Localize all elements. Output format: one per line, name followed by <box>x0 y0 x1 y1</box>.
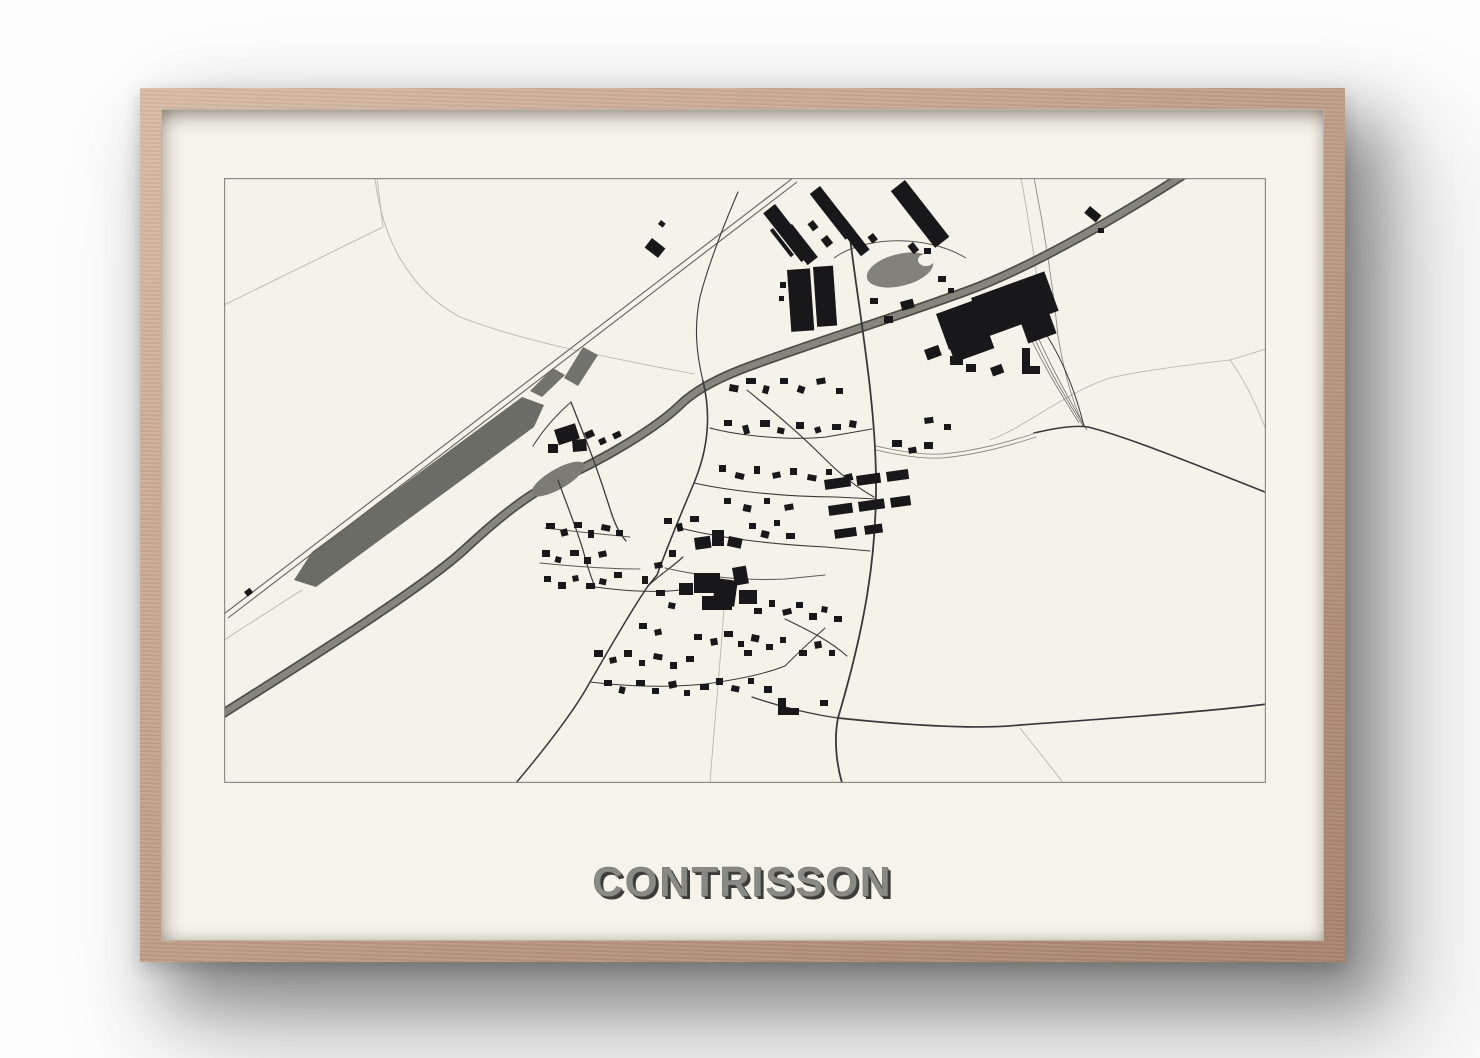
building-footprint <box>544 576 551 582</box>
building-footprint <box>694 536 712 550</box>
building-footprint <box>769 600 775 607</box>
pond-notch <box>918 254 934 266</box>
building-footprint <box>834 616 842 622</box>
building-footprint <box>790 468 797 475</box>
building-footprint <box>624 650 632 657</box>
building-footprint <box>787 268 814 331</box>
building-footprint <box>738 641 744 647</box>
building-footprint <box>1022 366 1040 374</box>
building-footprint <box>786 533 795 539</box>
building-footprint <box>588 530 594 538</box>
building-footprint <box>836 388 843 394</box>
building-footprint <box>944 424 951 430</box>
building-footprint <box>950 356 963 365</box>
building-footprint <box>774 520 780 526</box>
building-footprint <box>748 678 754 684</box>
building-footprint <box>572 439 587 452</box>
building-footprint <box>821 606 828 613</box>
building-footprint <box>719 465 726 472</box>
building-footprint <box>639 623 647 629</box>
building-footprint <box>870 298 878 304</box>
building-footprint <box>716 678 723 685</box>
building-footprint <box>813 266 837 327</box>
building-footprint <box>700 684 709 690</box>
building-footprint <box>754 608 762 614</box>
building-footprint <box>780 378 788 384</box>
building-footprint <box>636 680 645 686</box>
building-footprint <box>616 530 623 536</box>
building-footprint <box>594 650 603 657</box>
building-footprint <box>1098 228 1104 233</box>
building-footprint <box>796 422 804 429</box>
building-footprint <box>724 420 732 426</box>
building-footprint <box>542 550 550 557</box>
building-footprint <box>948 288 954 293</box>
building-footprint <box>884 316 893 323</box>
picture-frame: CONTRISSON <box>140 88 1345 962</box>
building-footprint <box>664 518 672 524</box>
building-footprint <box>820 700 828 706</box>
building-footprint <box>614 572 622 578</box>
building-footprint <box>558 582 566 589</box>
building-footprint <box>754 466 760 474</box>
building-footprint <box>799 650 807 656</box>
building-footprint <box>669 550 676 557</box>
poster-title: CONTRISSON <box>162 858 1323 906</box>
building-footprint <box>849 420 857 428</box>
building-footprint <box>764 686 772 693</box>
building-footprint <box>702 596 732 610</box>
building-footprint <box>760 420 770 427</box>
building-footprint <box>548 444 558 453</box>
map-paper <box>224 178 1266 783</box>
building-footprint <box>584 557 591 564</box>
building-footprint <box>670 662 677 669</box>
building-footprint <box>829 650 835 656</box>
building-footprint <box>642 576 648 584</box>
building-footprint <box>924 442 933 449</box>
building-footprint <box>570 550 579 556</box>
building-footprint <box>744 650 752 656</box>
building-footprint <box>710 638 718 646</box>
building-footprint <box>712 530 724 546</box>
building-footprint <box>966 364 976 372</box>
building-footprint <box>796 602 803 608</box>
building-footprint <box>652 688 659 694</box>
town-map <box>224 178 1266 783</box>
building-footprint <box>778 708 799 715</box>
building-footprint <box>924 417 934 424</box>
building-footprint <box>724 631 733 637</box>
building-footprint <box>724 498 731 504</box>
building-footprint <box>694 634 702 640</box>
building-footprint <box>739 590 757 604</box>
building-footprint <box>924 248 931 254</box>
building-footprint <box>938 276 946 282</box>
building-footprint <box>586 583 595 589</box>
mat-board: CONTRISSON <box>161 109 1324 941</box>
building-footprint <box>690 516 699 522</box>
building-footprint <box>604 680 612 686</box>
building-footprint <box>679 583 693 595</box>
building-footprint <box>684 690 690 696</box>
building-footprint <box>826 469 832 475</box>
building-footprint <box>764 498 770 504</box>
building-footprint <box>686 656 694 662</box>
building-footprint <box>780 637 786 643</box>
map-panel <box>224 178 1266 783</box>
wall: CONTRISSON <box>0 0 1480 1058</box>
building-footprint <box>832 424 841 430</box>
building-footprint <box>574 522 582 528</box>
building-footprint <box>572 575 579 582</box>
building-footprint <box>780 282 786 288</box>
building-footprint <box>639 660 645 666</box>
building-footprint <box>892 440 902 447</box>
building-footprint <box>656 590 665 596</box>
building-footprint <box>546 523 555 529</box>
building-footprint <box>779 296 784 301</box>
building-footprint <box>809 613 817 620</box>
building-footprint <box>749 523 756 529</box>
building-footprint <box>746 378 756 384</box>
building-footprint <box>814 641 822 649</box>
building-footprint <box>766 644 773 650</box>
